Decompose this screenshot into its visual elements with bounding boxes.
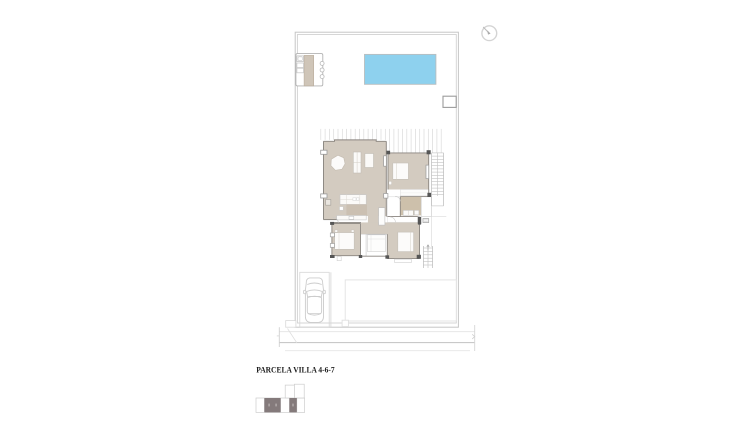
svg-text:PARCELA VILLA 4-6-7: PARCELA VILLA 4-6-7 — [256, 364, 335, 374]
